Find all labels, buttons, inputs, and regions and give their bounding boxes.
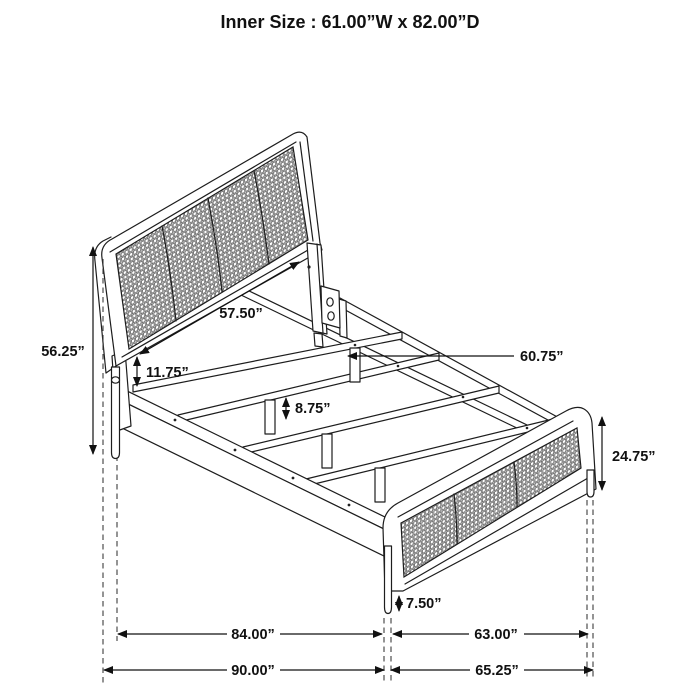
dim-label-footboard-leg: 7.50” [406, 596, 441, 612]
headboard-cane-panel [116, 147, 308, 349]
slat-leg-2 [265, 400, 275, 434]
leg-dowel-top [112, 377, 120, 383]
rail-bracket [321, 286, 340, 328]
slat-leg-1 [350, 348, 360, 382]
screw-dot [307, 265, 310, 268]
dim-label-overall-width: 65.25” [475, 663, 519, 679]
dim-label-slat-leg: 8.75” [295, 401, 330, 417]
slat-1 [133, 332, 402, 392]
dim-label-panel-width: 57.50” [219, 306, 263, 322]
slat-leg-4 [375, 468, 385, 502]
page-title: Inner Size : 61.00”W x 82.00”D [220, 12, 479, 32]
slat-leg-3 [322, 434, 332, 468]
dim-label-inner-length: 84.00” [231, 627, 275, 643]
dim-label-overall-length: 90.00” [231, 663, 275, 679]
diagram-canvas: Inner Size : 61.00”W x 82.00”D [0, 0, 700, 700]
dim-label-footboard-height: 24.75” [612, 449, 656, 465]
dim-label-panel-to-rail: 11.75” [146, 365, 189, 381]
footboard-far-leg [587, 470, 594, 497]
dim-label-slat-length: 60.75” [520, 349, 564, 365]
dim-label-inner-width: 63.00” [474, 627, 518, 643]
dim-label-headboard-height: 56.25” [41, 344, 85, 360]
far-side-rail [338, 298, 572, 432]
bed-dimension-diagram: Inner Size : 61.00”W x 82.00”D [0, 0, 700, 700]
headboard-right-leg [314, 333, 323, 347]
footboard-near-leg [385, 546, 392, 614]
